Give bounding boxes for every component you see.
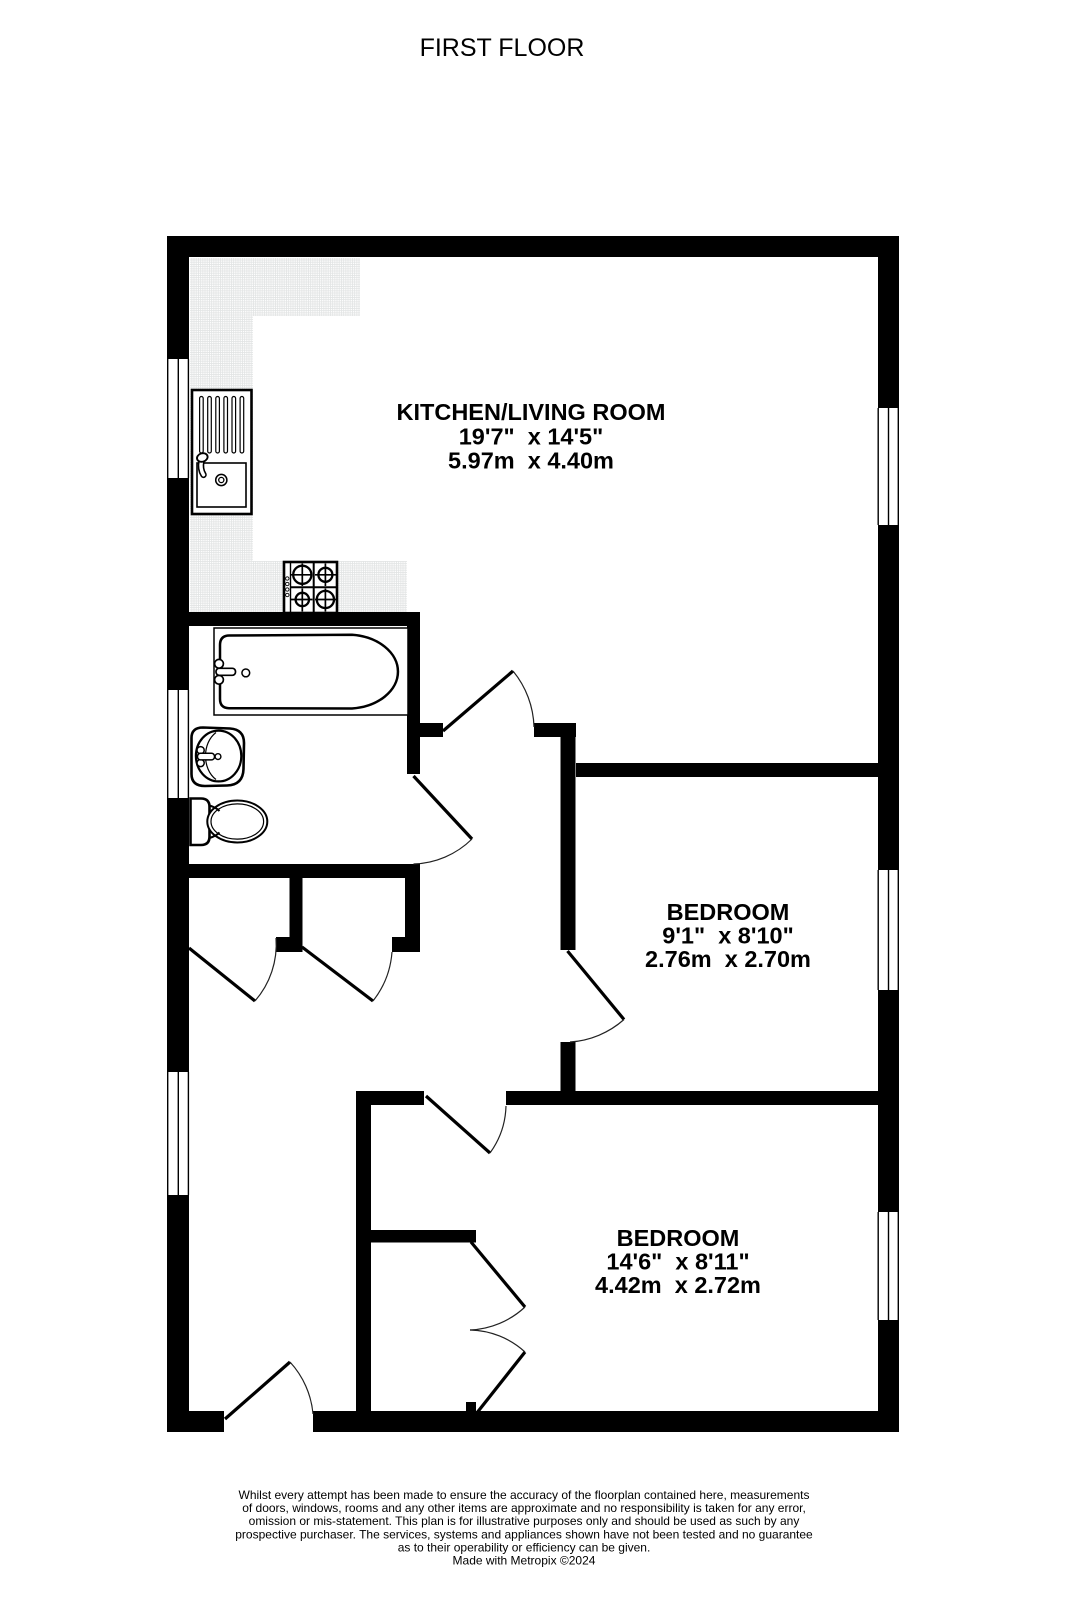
- svg-text:KITCHEN/LIVING ROOM: KITCHEN/LIVING ROOM: [397, 399, 666, 425]
- svg-text:as to their operability or eff: as to their operability or efficiency ca…: [398, 1540, 651, 1554]
- svg-text:2.76m x 2.70m: 2.76m x 2.70m: [645, 946, 811, 972]
- svg-text:Made with Metropix ©2024: Made with Metropix ©2024: [453, 1554, 596, 1568]
- svg-text:4.42m x 2.72m: 4.42m x 2.72m: [595, 1272, 761, 1298]
- svg-text:prospective purchaser. The ser: prospective purchaser. The services, sys…: [235, 1527, 813, 1541]
- svg-text:19'7" x 14'5": 19'7" x 14'5": [459, 424, 604, 450]
- svg-text:9'1" x 8'10": 9'1" x 8'10": [662, 923, 793, 949]
- svg-text:BEDROOM: BEDROOM: [667, 899, 790, 925]
- svg-text:FIRST FLOOR: FIRST FLOOR: [420, 34, 585, 62]
- svg-text:BEDROOM: BEDROOM: [617, 1225, 740, 1251]
- svg-text:14'6" x 8'11": 14'6" x 8'11": [606, 1249, 749, 1275]
- svg-text:5.97m x 4.40m: 5.97m x 4.40m: [448, 448, 614, 474]
- svg-text:of doors, windows, rooms and a: of doors, windows, rooms and any other i…: [242, 1501, 806, 1515]
- svg-text:Whilst every attempt has been: Whilst every attempt has been made to en…: [239, 1488, 810, 1502]
- svg-text:omission or mis-statement. Thi: omission or mis-statement. This plan is …: [249, 1514, 800, 1528]
